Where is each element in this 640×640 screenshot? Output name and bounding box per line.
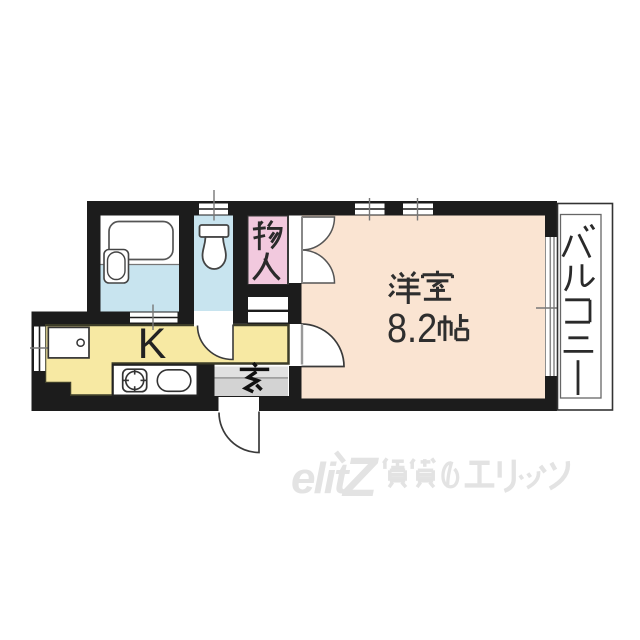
svg-text:K: K [138,320,167,368]
svg-text:Z: Z [341,445,379,508]
svg-text:8.2: 8.2 [387,306,437,352]
